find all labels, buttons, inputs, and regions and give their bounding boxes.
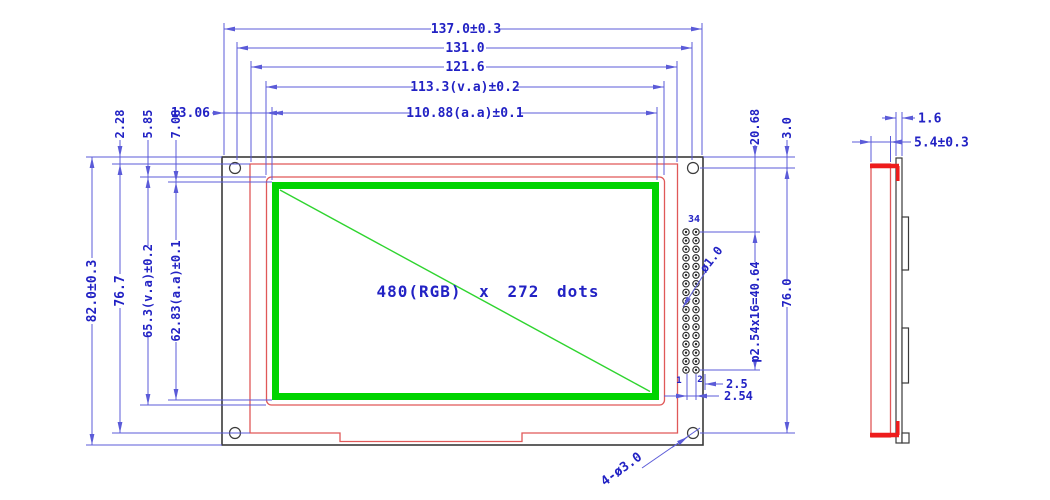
connector-pin-center (695, 343, 697, 345)
connector-pin-center (695, 231, 697, 233)
connector-pin-center (695, 360, 697, 362)
connector-pin-center (695, 326, 697, 328)
connector-pin-center (695, 369, 697, 371)
module-outline (222, 157, 703, 445)
pin2-label: 2 (697, 375, 702, 385)
side-component-upper (902, 217, 909, 270)
dim-hole-span-width: 131.0 (445, 41, 484, 56)
connector-pin-center (685, 352, 687, 354)
dim-total-thickness: 5.4±0.3 (914, 136, 969, 151)
dim-hole-span-height: 76.0 (780, 279, 794, 308)
connector-pin-center (685, 369, 687, 371)
lcd-module-drawing: 480(RGB) x 272 dots 34 1 2 (0, 0, 1050, 500)
dim-hole-top-offset: 3.0 (780, 117, 794, 139)
drawing-canvas: 480(RGB) x 272 dots 34 1 2 (0, 0, 1050, 500)
connector-pin-center (695, 300, 697, 302)
connector-pin-center (695, 291, 697, 293)
connector-pin-center (685, 308, 687, 310)
callout-mounting-holes: 4-ø3.0 (598, 450, 645, 490)
dim-overall-height: 82.0±0.3 (85, 260, 100, 323)
connector-pin-center (685, 291, 687, 293)
connector-pin-center (685, 326, 687, 328)
dim-active-area-height: 62.83(a.a)±0.1 (169, 240, 183, 341)
side-panel-outline (871, 164, 891, 437)
side-view (870, 158, 909, 443)
connector-pin-center (685, 283, 687, 285)
connector-pin-center (695, 274, 697, 276)
dim-active-area-top-offset: 7.08 (169, 110, 183, 139)
connector-pin-center (685, 343, 687, 345)
dim-pin-row-offset: 20.68 (748, 109, 762, 145)
dim-view-area-height: 65.3(v.a)±0.2 (141, 244, 155, 338)
connector-pin-center (695, 248, 697, 250)
side-component-bottom (902, 433, 909, 443)
dim-frame-width: 121.6 (445, 60, 484, 75)
connector-pin-center (685, 248, 687, 250)
pin-count-label: 34 (688, 214, 700, 225)
connector-pin-center (685, 257, 687, 259)
display-resolution-label: 480(RGB) x 272 dots (376, 282, 599, 301)
connector-pin-center (695, 257, 697, 259)
connector-pin-center (685, 231, 687, 233)
connector-pin-center (695, 239, 697, 241)
dim-view-area-top-offset: 5.85 (141, 110, 155, 139)
side-component-lower (902, 328, 909, 383)
pin1-label: 1 (676, 376, 681, 386)
front-view: 480(RGB) x 272 dots 34 1 2 (222, 157, 703, 445)
dim-view-area-width: 113.3(v.a)±0.2 (410, 80, 520, 95)
connector-pin-center (685, 360, 687, 362)
mounting-hole-top-right (688, 163, 699, 174)
dim-pin-pitch: p2.54x16=40.64 (748, 261, 762, 362)
connector-pin-center (685, 274, 687, 276)
connector-pin-center (685, 239, 687, 241)
connector-pin-center (685, 334, 687, 336)
dim-active-area-width: 110.88(a.a)±0.1 (406, 106, 524, 121)
connector-pin-center (695, 308, 697, 310)
connector-pin-center (695, 352, 697, 354)
dim-pin-col-pitch: 2.54 (724, 389, 753, 403)
connector-pin-center (685, 265, 687, 267)
side-pcb (896, 158, 902, 443)
connector-pin-center (695, 317, 697, 319)
dim-frame-top-offset: 2.28 (113, 110, 127, 139)
dim-pcb-thickness: 1.6 (918, 112, 942, 127)
connector-pin-center (685, 317, 687, 319)
dim-frame-height: 76.7 (113, 275, 128, 306)
dim-overall-width: 137.0±0.3 (431, 22, 501, 37)
connector-pin-center (695, 334, 697, 336)
